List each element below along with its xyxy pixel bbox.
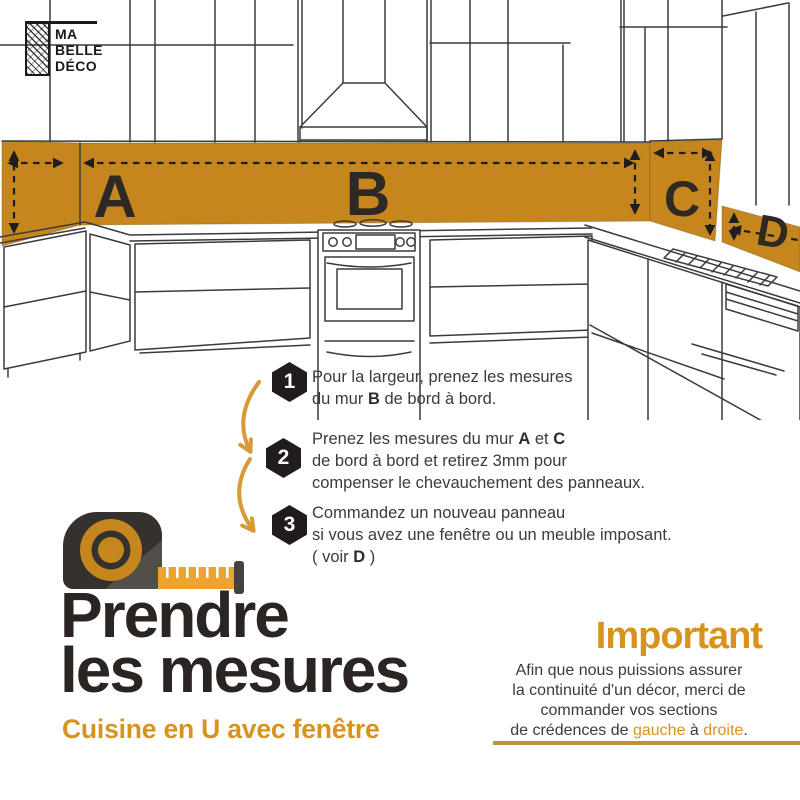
step-1-number: 1 [284, 370, 296, 394]
page-subtitle: Cuisine en U avec fenêtre [62, 714, 380, 745]
important-line: la continuité d'un décor, merci de [470, 681, 788, 701]
step-3-number: 3 [284, 513, 296, 537]
step-2-number: 2 [278, 446, 290, 470]
step-line: Pour la largeur, prenez les mesures [312, 366, 572, 388]
step-line: Commandez un nouveau panneau [312, 502, 672, 524]
important-heading: Important [500, 615, 762, 658]
step-1-text: Pour la largeur, prenez les mesures du m… [312, 366, 572, 410]
page-title: Prendre les mesures [60, 588, 408, 698]
panel-label-c: C [664, 171, 700, 227]
logo-line-3: DÉCO [55, 58, 103, 74]
step-line: si vous avez une fenêtre ou un meuble im… [312, 524, 672, 546]
step-3-text: Commandez un nouveau panneau si vous ave… [312, 502, 672, 568]
panel-label-b: B [346, 160, 391, 229]
kitchen-diagram: A B C D [0, 0, 800, 420]
logo-line-1: MA [55, 26, 103, 42]
step-2-text: Prenez les mesures du mur A et C de bord… [312, 428, 645, 494]
important-line: commander vos sections [470, 701, 788, 721]
important-line: de crédences de gauche à droite. [470, 721, 788, 741]
range-hood-sketch [300, 0, 427, 142]
title-line-2: les mesures [60, 643, 408, 698]
infographic-canvas: A B C D [0, 0, 800, 800]
step-line: de bord à bord et retirez 3mm pour [312, 450, 645, 472]
logo-hatch-mark-icon [25, 21, 50, 76]
arrow-step1-to-step2 [243, 382, 259, 451]
step-line: Prenez les mesures du mur A et C [312, 428, 645, 450]
gold-underline [493, 741, 800, 745]
logo-wordmark: MA BELLE DÉCO [55, 26, 103, 74]
logo-line-2: BELLE [55, 42, 103, 58]
important-line: Afin que nous puissions assurer [470, 661, 788, 681]
step-line: du mur B de bord à bord. [312, 388, 572, 410]
important-body: Afin que nous puissions assurer la conti… [470, 661, 788, 741]
panel-label-a: A [93, 163, 136, 230]
base-cabinets-sketch [0, 222, 592, 377]
step-line: ( voir D ) [312, 546, 672, 568]
step-line: compenser le chevauchement des panneaux. [312, 472, 645, 494]
